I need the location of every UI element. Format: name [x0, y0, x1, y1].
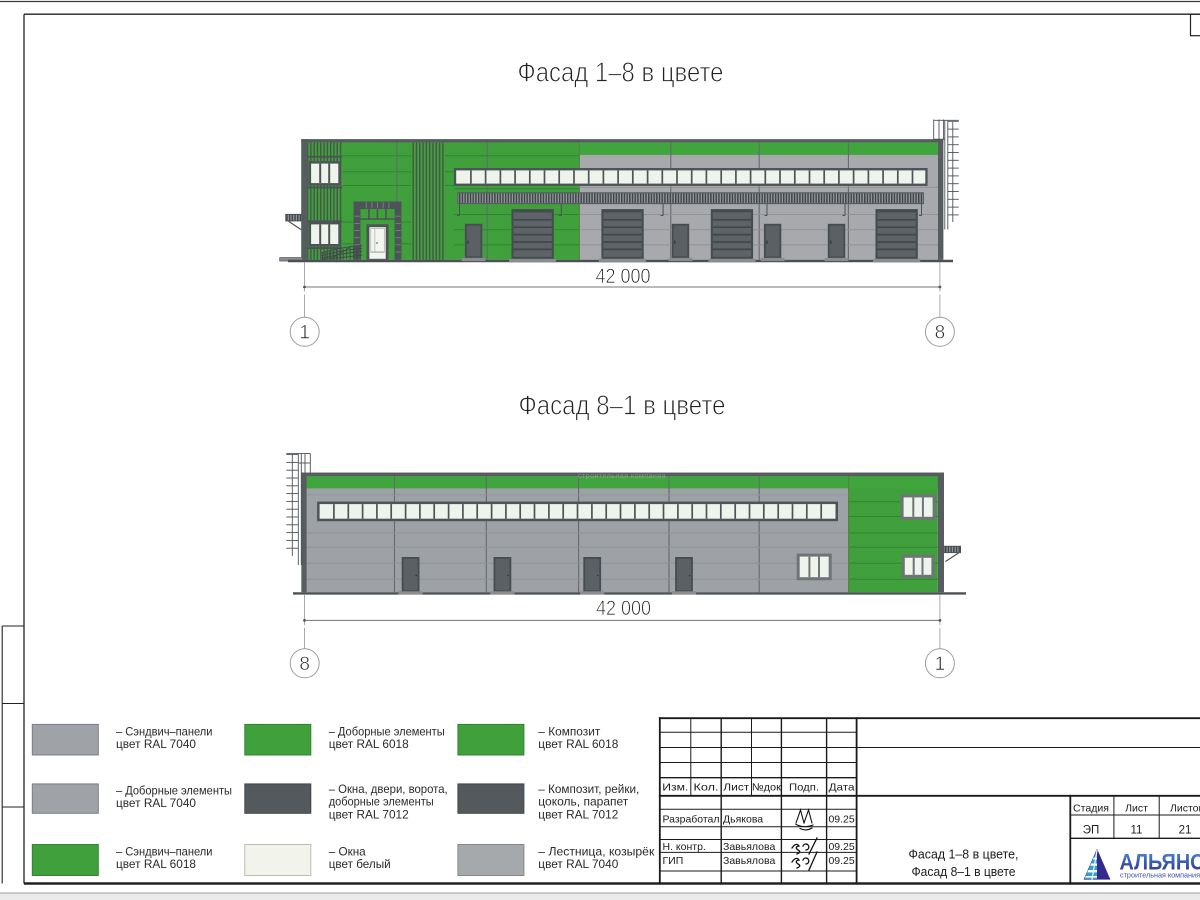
svg-text:Завьялова: Завьялова — [723, 855, 775, 867]
svg-text:Фасад 1–8 в цвете,: Фасад 1–8 в цвете, — [909, 847, 1019, 862]
svg-text:цвет RAL 6018: цвет RAL 6018 — [329, 737, 409, 751]
svg-text:8: 8 — [299, 654, 310, 675]
svg-text:1: 1 — [299, 322, 310, 343]
svg-text:Изм.: Изм. — [662, 782, 688, 794]
svg-text:Фасад 8–1 в цвете: Фасад 8–1 в цвете — [519, 390, 726, 421]
svg-text:цвет RAL 6018: цвет RAL 6018 — [538, 737, 618, 751]
svg-text:8: 8 — [935, 322, 946, 343]
svg-text:ЭП: ЭП — [1083, 825, 1100, 837]
svg-text:строительная компания: строительная компания — [578, 471, 666, 480]
svg-text:Завьялова: Завьялова — [723, 841, 775, 853]
svg-text:Дата: Дата — [829, 782, 855, 794]
svg-text:Разработал: Разработал — [663, 814, 720, 826]
svg-text:Н. контр.: Н. контр. — [663, 841, 706, 853]
svg-text:Лист: Лист — [723, 782, 749, 794]
svg-text:09.25: 09.25 — [828, 814, 854, 826]
svg-text:42 000: 42 000 — [596, 265, 651, 288]
svg-text:11: 11 — [1131, 825, 1143, 837]
svg-text:Лист: Лист — [1125, 803, 1148, 815]
svg-text:цвет RAL 7040: цвет RAL 7040 — [538, 857, 618, 871]
svg-text:цвет RAL 6018: цвет RAL 6018 — [116, 857, 196, 871]
svg-text:21: 21 — [1179, 825, 1192, 837]
svg-text:09.25: 09.25 — [828, 855, 854, 867]
svg-text:Дьякова: Дьякова — [723, 814, 763, 826]
svg-text:Фасад 1–8 в цвете: Фасад 1–8 в цвете — [518, 57, 724, 88]
svg-text:цвет RAL 7012: цвет RAL 7012 — [538, 807, 618, 821]
svg-text:ГИП: ГИП — [663, 855, 684, 867]
svg-text:Листов: Листов — [1170, 803, 1200, 815]
svg-text:цвет RAL 7040: цвет RAL 7040 — [116, 737, 196, 751]
svg-text:строительная компания: строительная компания — [1120, 871, 1200, 880]
svg-text:Фасад 8–1 в цвете: Фасад 8–1 в цвете — [912, 864, 1016, 879]
svg-text:Стадия: Стадия — [1073, 803, 1109, 815]
svg-text:цвет RAL 7040: цвет RAL 7040 — [116, 796, 196, 810]
svg-text:42 000: 42 000 — [596, 597, 651, 620]
svg-text:09.25: 09.25 — [828, 841, 854, 853]
svg-text:цвет белый: цвет белый — [329, 857, 391, 871]
svg-text:Кол.: Кол. — [694, 782, 719, 794]
svg-text:№док: №док — [752, 782, 781, 794]
svg-text:1: 1 — [935, 654, 946, 675]
svg-text:Подп.: Подп. — [789, 782, 819, 794]
svg-text:цвет RAL 7012: цвет RAL 7012 — [329, 807, 409, 821]
